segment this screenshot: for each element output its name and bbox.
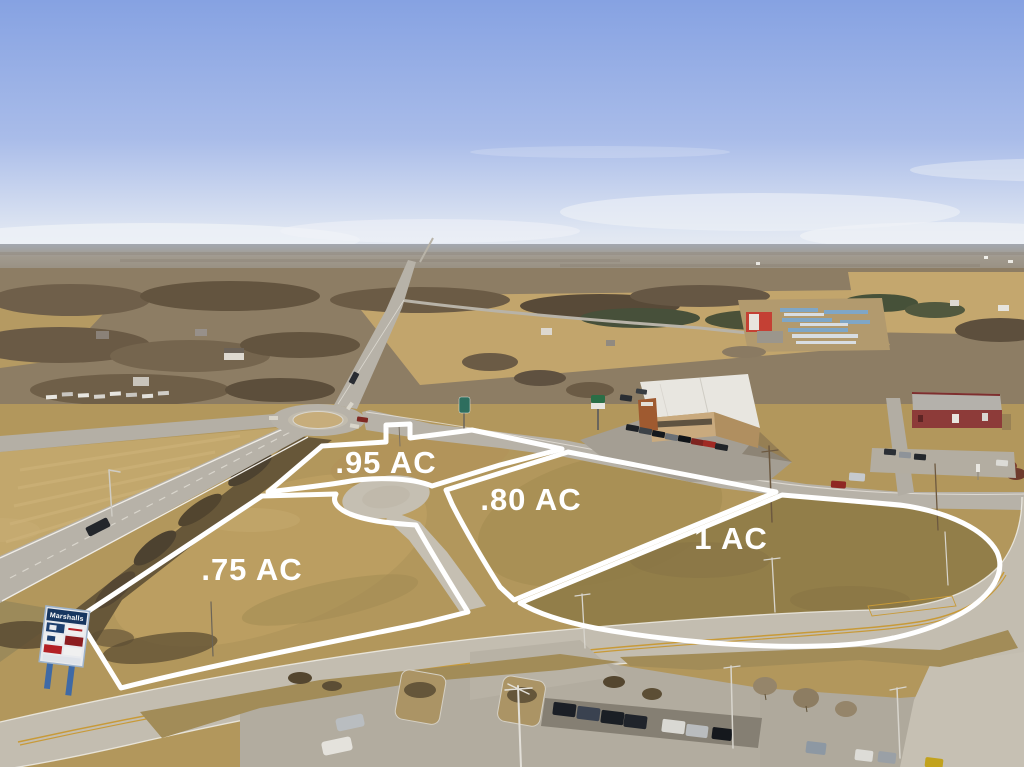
nursery-yard [722,298,890,358]
sky [0,0,1024,257]
aerial-photo-stage: .95 AC .80 AC 1 AC .75 AC Marshalls [0,0,1024,767]
parcel-1-label: 1 AC [694,521,767,556]
parcel-075-label: .75 AC [201,552,302,587]
parcel-080-label: .80 AC [480,482,581,517]
aerial-photo: .95 AC .80 AC 1 AC .75 AC Marshalls [0,0,1024,767]
parcel-095-label: .95 AC [335,445,436,480]
